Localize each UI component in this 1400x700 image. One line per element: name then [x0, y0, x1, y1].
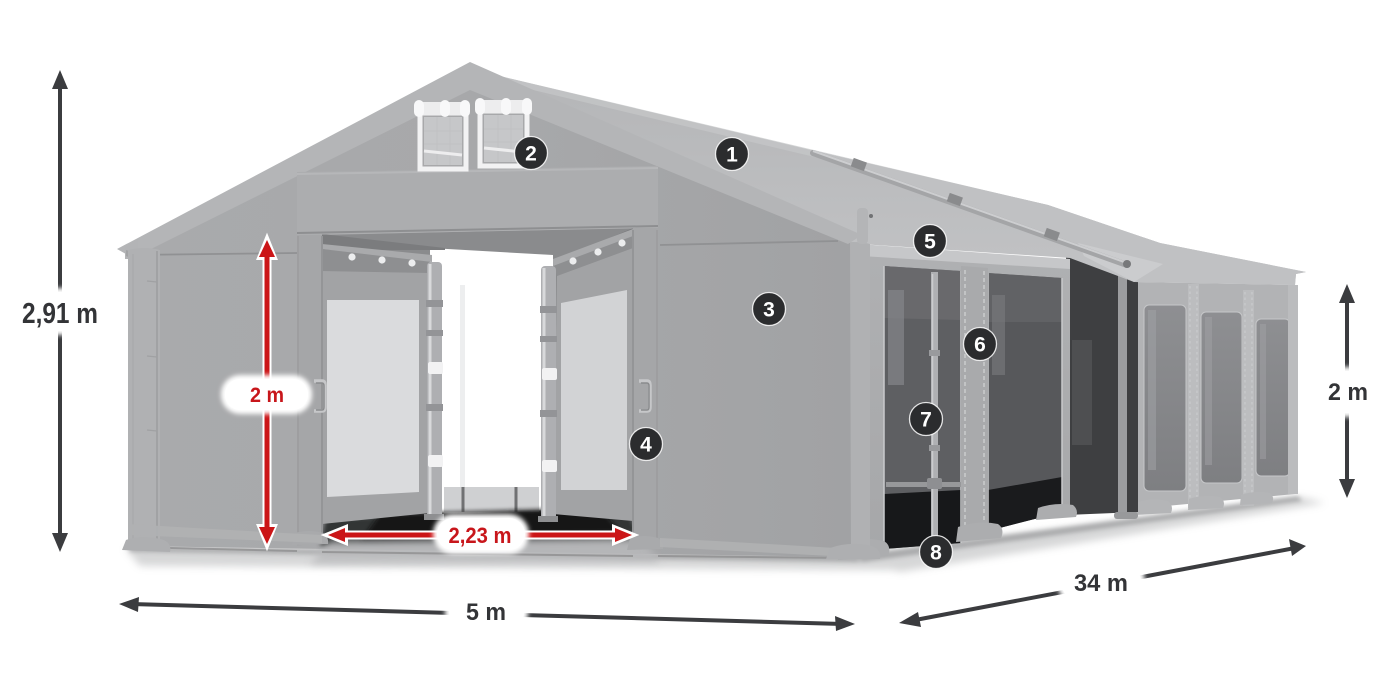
svg-text:6: 6: [974, 334, 986, 357]
svg-text:2,23 m: 2,23 m: [449, 523, 512, 548]
svg-text:2,91 m: 2,91 m: [22, 298, 98, 330]
svg-text:8: 8: [930, 542, 942, 565]
svg-text:5: 5: [924, 231, 936, 254]
svg-text:4: 4: [640, 434, 652, 457]
svg-text:3: 3: [763, 299, 775, 322]
svg-text:2: 2: [525, 143, 537, 166]
svg-text:7: 7: [920, 409, 932, 432]
svg-text:34 m: 34 m: [1074, 570, 1128, 597]
svg-text:2 m: 2 m: [250, 384, 284, 407]
svg-text:1: 1: [726, 144, 738, 167]
svg-text:2 m: 2 m: [1328, 379, 1368, 406]
svg-text:5 m: 5 m: [466, 599, 506, 626]
